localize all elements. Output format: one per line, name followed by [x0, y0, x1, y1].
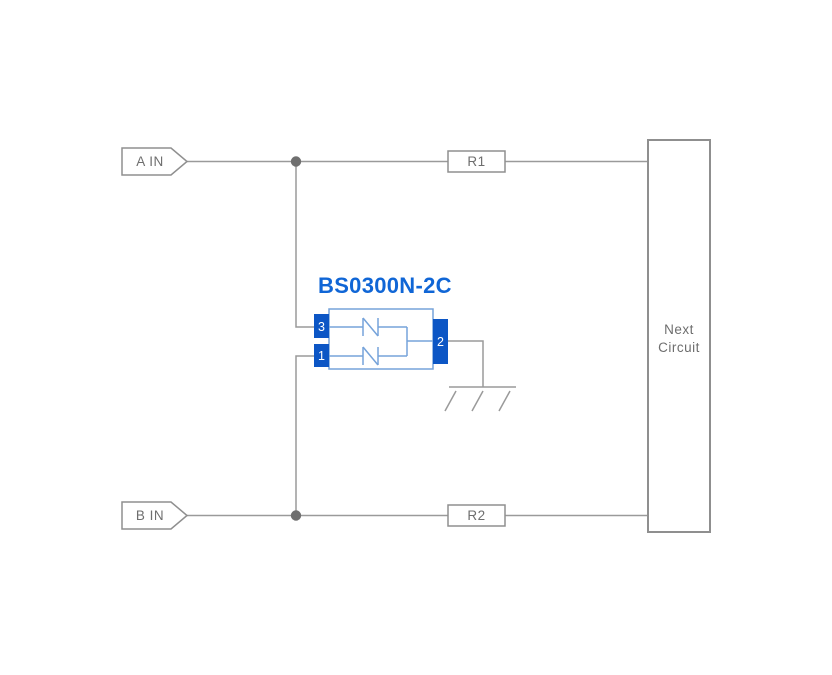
- next-circuit-label-line2: Circuit: [658, 340, 700, 355]
- circuit-diagram: A IN B IN R1 R2 Next Circuit BS0300N-2C: [0, 0, 832, 675]
- ground-symbol: [445, 387, 516, 411]
- ground-hatch-2: [472, 391, 483, 411]
- wire-a-branch-to-pin3: [296, 162, 314, 328]
- junction-dot-b: [291, 510, 301, 520]
- component-title: BS0300N-2C: [318, 273, 452, 298]
- component-body: [329, 309, 433, 369]
- junction-dot-a: [291, 156, 301, 166]
- ground-hatch-1: [445, 391, 456, 411]
- pin-1-number: 1: [318, 349, 325, 363]
- resistor-label-r1: R1: [467, 154, 485, 169]
- wire-b-branch-to-pin1: [296, 356, 314, 516]
- input-label-a: A IN: [136, 154, 164, 169]
- ground-hatch-3: [499, 391, 510, 411]
- pin-2-number: 2: [437, 335, 444, 349]
- wire-pin2-to-ground: [448, 341, 483, 387]
- input-label-b: B IN: [136, 508, 164, 523]
- resistor-label-r2: R2: [467, 508, 485, 523]
- pin-3-number: 3: [318, 320, 325, 334]
- schematic-page: A IN B IN R1 R2 Next Circuit BS0300N-2C: [0, 0, 832, 675]
- next-circuit-label-line1: Next: [664, 322, 694, 337]
